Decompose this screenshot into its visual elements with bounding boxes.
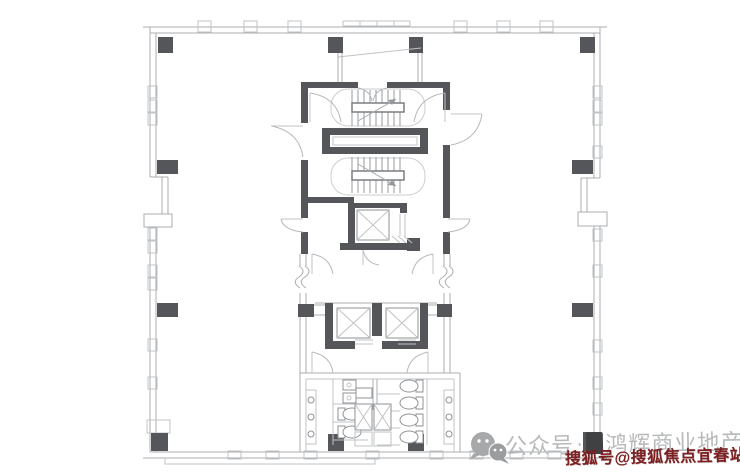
wall-break-lines [295,254,453,304]
corridor-lobby [322,128,428,154]
floor-plan-drawing [0,0,740,475]
staircase-upper [331,89,425,126]
passenger-elevators [298,303,452,373]
floor-plan-screenshot: 公众号 · 鸿辉商业地产 搜狐号@搜狐焦点宜春站 [0,0,740,475]
staircase-lower [331,157,425,195]
service-elevator [340,203,420,251]
restrooms [300,373,460,452]
sohu-watermark-text: 搜狐号@搜狐焦点宜春站 [565,441,740,469]
